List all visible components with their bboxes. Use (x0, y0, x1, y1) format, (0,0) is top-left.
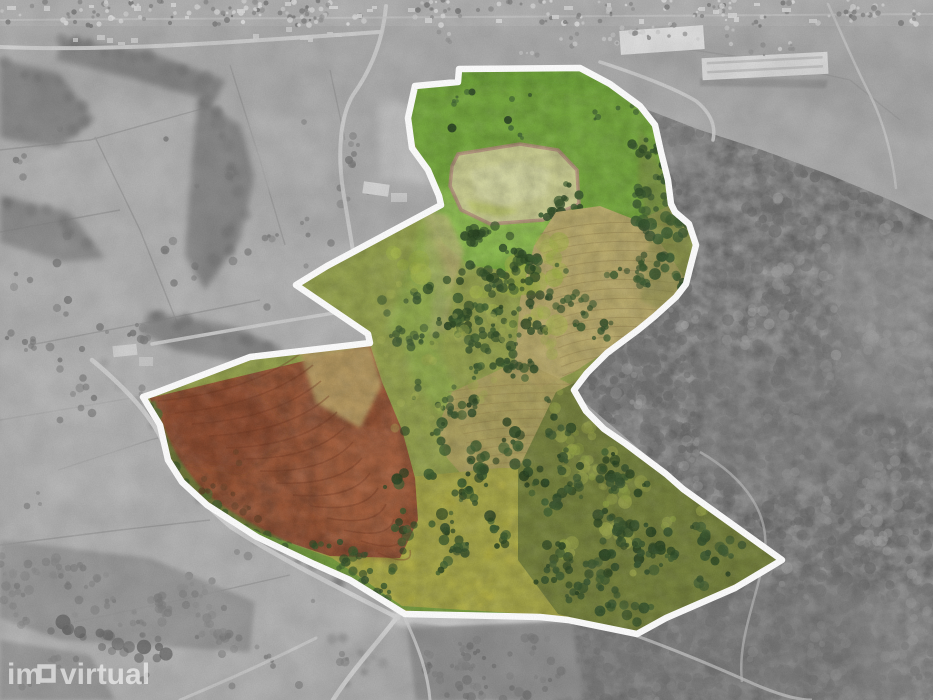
svg-text:virtual: virtual (60, 658, 150, 691)
svg-text:im: im (7, 658, 42, 691)
